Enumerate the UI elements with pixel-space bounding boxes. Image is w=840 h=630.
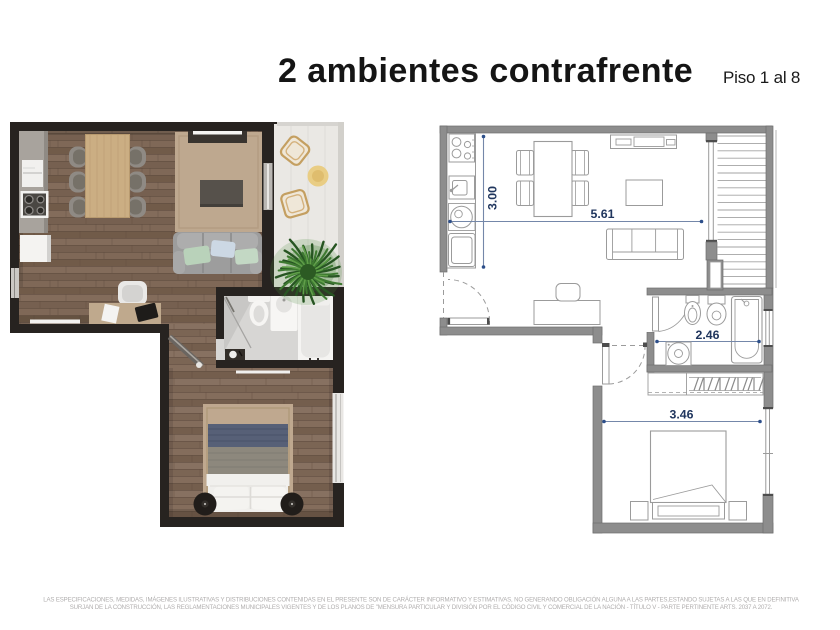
svg-text:5.61: 5.61 [591, 207, 615, 221]
svg-text:Piso 1 al 8: Piso 1 al 8 [723, 68, 800, 87]
svg-text:SURJAN DE LA CONSTRUCCIÓN, LAS: SURJAN DE LA CONSTRUCCIÓN, LAS REGLAMENT… [70, 604, 773, 611]
svg-text:2 ambientes contrafrente: 2 ambientes contrafrente [278, 52, 693, 90]
svg-text:3.46: 3.46 [670, 408, 694, 422]
svg-text:3.00: 3.00 [486, 186, 500, 210]
svg-text:LAS ESPECIFICACIONES, MEDIDAS,: LAS ESPECIFICACIONES, MEDIDAS, IMÁGENES … [43, 597, 800, 604]
svg-text:2.46: 2.46 [696, 328, 720, 342]
